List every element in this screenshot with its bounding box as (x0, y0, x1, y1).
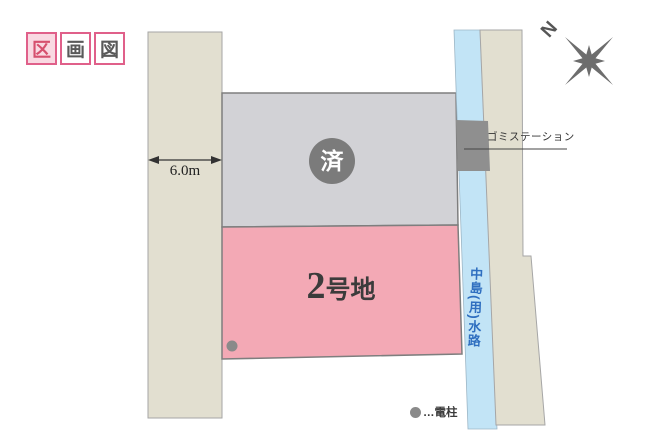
plot-map: 区 画 図 6.0m 済 2号地 中島(用)水路 ゴミステーション N …電柱 (0, 0, 649, 444)
title-char-box: 図 (94, 32, 125, 65)
road-area (148, 32, 222, 418)
lot2-number: 2 (306, 264, 325, 308)
garbage-station-label: ゴミステーション (487, 129, 575, 144)
sold-badge-label: 済 (309, 138, 355, 184)
compass-star-icon (565, 37, 613, 85)
legend-utility-pole: …電柱 (410, 404, 458, 420)
utility-pole-dot (227, 341, 238, 352)
garbage-station-box (456, 120, 490, 171)
title-char-box: 区 (26, 32, 57, 65)
plot-map-canvas (0, 0, 649, 444)
utility-pole-legend-label: …電柱 (423, 404, 458, 420)
road-width-label: 6.0m (156, 163, 214, 180)
utility-pole-legend-icon (410, 407, 421, 418)
waterway-name-label: 中島(用)水路 (457, 252, 486, 363)
lot2-suffix: 号地 (325, 270, 375, 306)
title-char-box: 画 (60, 32, 91, 65)
page-title: 区 画 図 (26, 32, 125, 65)
lot2-label: 2号地 (276, 264, 406, 308)
